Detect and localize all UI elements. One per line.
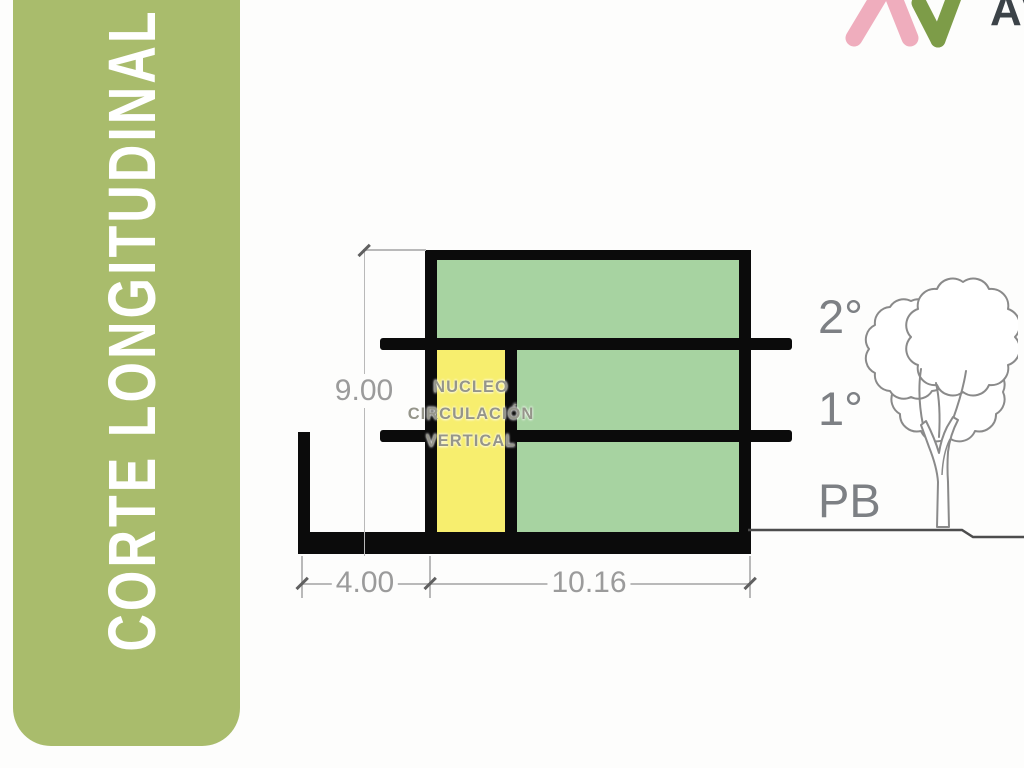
floor-label-2: 2°	[818, 293, 863, 340]
floor-slab-1-right	[505, 430, 792, 442]
floor-fill-1	[517, 350, 739, 430]
floor-slab-2	[380, 338, 792, 350]
retaining-wall	[298, 432, 310, 536]
logo-green-v-icon	[919, 0, 956, 40]
floor-fill-pb	[517, 442, 739, 532]
brand-wordmark: AV	[990, 0, 1024, 36]
dim-right-width-label: 10.16	[547, 566, 630, 600]
section-title: CORTE LONGITUDINAL	[95, 8, 172, 651]
core-label: NUCLEO CIRCULACIÓN VERTICAL	[406, 374, 536, 455]
dim-extension-left	[301, 556, 303, 598]
ground-slab	[298, 532, 751, 554]
building-right-wall	[739, 250, 751, 532]
floor-fill-2	[437, 260, 739, 338]
dim-helper-top	[363, 249, 426, 251]
dim-extension-right	[749, 556, 751, 598]
logo-pink-lambda-icon	[854, 0, 910, 38]
floor-label-1: 1°	[818, 385, 863, 432]
building-roof-outline	[425, 250, 751, 260]
tree-clump-right	[906, 279, 1018, 396]
dim-extension-mid	[429, 556, 431, 598]
tree-icon	[863, 277, 1018, 530]
dim-height-label: 9.00	[331, 374, 397, 408]
sidebar-banner: CORTE LONGITUDINAL	[13, 0, 240, 746]
slide: CORTE LONGITUDINAL AV NU	[0, 0, 1024, 768]
dim-left-width-label: 4.00	[332, 566, 398, 600]
brand-logo-icon	[838, 0, 998, 55]
